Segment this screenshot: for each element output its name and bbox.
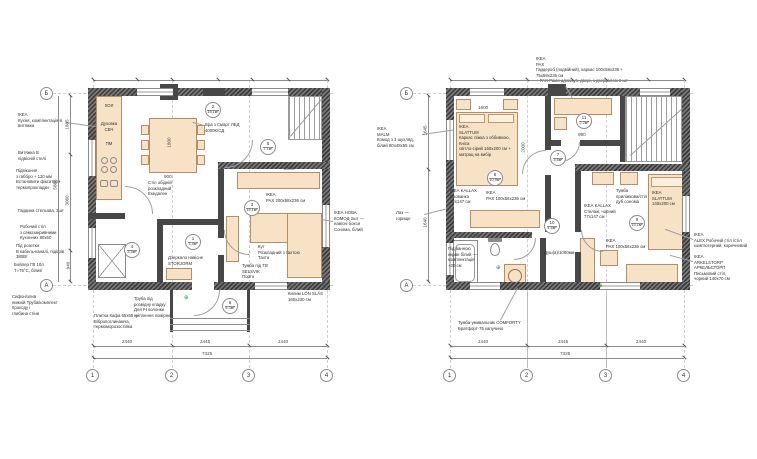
room-number: 11 bbox=[582, 116, 587, 121]
dim-tick bbox=[216, 77, 220, 81]
dim-value: 2445 bbox=[558, 339, 568, 344]
grid-label: 4 bbox=[325, 373, 328, 379]
room-area: 15,1м² bbox=[246, 208, 257, 213]
pax-wardrobe-label: ІКЕА PAX 200x58x236 см bbox=[266, 192, 320, 203]
washing-machine-drum bbox=[508, 269, 522, 283]
dining-chair bbox=[197, 140, 205, 150]
rug-label: Килим LÖN SLÄS 160x230 см bbox=[288, 291, 328, 302]
wall-left bbox=[88, 88, 96, 290]
kallax2-label: ІКЕА KALLAX Стелаж, чорний 77x147 см bbox=[584, 203, 626, 220]
dim-table-depth: 900 bbox=[164, 174, 172, 179]
grid-line-solid bbox=[606, 292, 607, 368]
wall-bedroom2-top bbox=[575, 164, 690, 171]
dim-tick bbox=[286, 77, 290, 81]
grid-bubble-1: 1 bbox=[86, 369, 99, 382]
bed-pillow bbox=[488, 114, 514, 123]
wall-hall-top bbox=[88, 213, 125, 219]
kallax1-label: ІКЕА KALLAX Схованка 42x147 см bbox=[450, 188, 484, 205]
room-area: 3,5м² bbox=[127, 250, 136, 255]
dim-line bbox=[93, 346, 327, 347]
dim-value: 2445 bbox=[200, 339, 210, 344]
grid-bubble-b: Б bbox=[40, 87, 53, 100]
room-number: 2 bbox=[212, 105, 215, 110]
nightstand bbox=[456, 99, 471, 110]
dim-tick bbox=[68, 279, 72, 283]
dim-value-vert: 940 bbox=[65, 262, 70, 270]
grid-label: Б bbox=[45, 91, 49, 97]
dim-value: 2440 bbox=[278, 339, 288, 344]
grid-bubble-2: 2 bbox=[520, 369, 533, 382]
room-number: 8 bbox=[494, 173, 497, 178]
hob-burner bbox=[110, 166, 117, 173]
toilet-tank bbox=[488, 238, 502, 242]
outlet-marker: ⊕ bbox=[496, 266, 501, 272]
dim-bed1-width: 1600 bbox=[478, 105, 488, 110]
wall-bedroom2-left bbox=[575, 171, 581, 232]
room-number: 7 bbox=[557, 153, 560, 158]
toilet-bowl bbox=[490, 243, 500, 256]
outlet-marker: ⊕ bbox=[598, 284, 603, 290]
room-area: 2,2м² bbox=[579, 121, 588, 126]
dim-value: 2440 bbox=[478, 339, 488, 344]
leader-line bbox=[500, 288, 518, 320]
hob-burner bbox=[110, 157, 117, 164]
wall-right bbox=[322, 88, 330, 290]
dim-tick bbox=[250, 77, 254, 81]
window bbox=[322, 205, 330, 247]
grid-label: 2 bbox=[525, 373, 528, 379]
vanity-label: Тумба-умивальник COMFORTY Братфорт-75 ка… bbox=[458, 320, 524, 331]
porch-step bbox=[170, 324, 250, 325]
alex-desk-label: ІКЕА ALEX Робочий стіл /стіл комп'ютерни… bbox=[694, 232, 752, 249]
dim-total: 7325 bbox=[202, 351, 212, 356]
sconce-label: Бра з Смарт ЛЕД 4000К/СД bbox=[205, 122, 247, 133]
window bbox=[600, 282, 640, 290]
porch-wall bbox=[247, 290, 250, 332]
nightstand bbox=[503, 99, 518, 110]
wall-bedroom2-left bbox=[575, 252, 581, 282]
note-kitchen: ІКЕА Кухня, комплектація й витяжка bbox=[18, 112, 68, 129]
dining-table bbox=[149, 118, 197, 173]
grid-label: А bbox=[404, 283, 408, 289]
sink-bowl bbox=[110, 180, 118, 187]
window bbox=[252, 88, 288, 96]
dining-table-label: Стіл обідній розкладний Екедален bbox=[148, 180, 190, 197]
door-arc bbox=[522, 150, 546, 174]
dim-closet: 990 bbox=[578, 132, 586, 137]
sofa-label: Кут Розкладний з тахтою Тахта bbox=[258, 244, 302, 261]
room-tag-hall: 4 3,5м² bbox=[124, 242, 140, 258]
grid-line-solid bbox=[527, 292, 528, 368]
grid-bubble-b: Б bbox=[400, 87, 413, 100]
grid-bubble-a: А bbox=[400, 279, 413, 292]
note-commode: ІКЕА НОВА КОМОД 2шт — навісні бокси Соно… bbox=[334, 210, 368, 232]
room-tag-bedroom2: 9 13,1м² bbox=[629, 215, 645, 231]
hob-burner bbox=[101, 166, 108, 173]
oven-label: Духовка СВЧ bbox=[98, 121, 120, 132]
dining-chair bbox=[141, 155, 149, 165]
room-tag-kitchen: 2 18,1м² bbox=[205, 102, 221, 118]
dining-chair bbox=[141, 140, 149, 150]
dim-total: 7325 bbox=[560, 351, 570, 356]
attic-hatch-label: Лаз — горище bbox=[396, 210, 426, 221]
wall-room1-top bbox=[157, 219, 218, 225]
room-area: 7,1м² bbox=[263, 147, 272, 152]
door-opening bbox=[192, 282, 214, 290]
nightstand bbox=[620, 172, 638, 185]
dim-value-vert: 1885 bbox=[65, 119, 70, 129]
pax-small-label: ІКЕА PAX 100x58x236 см bbox=[486, 190, 528, 201]
dim-bath1: 1370 bbox=[470, 233, 480, 238]
note-sill: Підвіконня з габбро + 120 мм Встановити … bbox=[16, 168, 70, 190]
entry-door-arc bbox=[194, 290, 220, 316]
note-curtain: Гардина стельова, 2шт bbox=[18, 208, 66, 214]
arkelstorp-desk bbox=[626, 264, 678, 284]
dim-value: 2440 bbox=[636, 339, 646, 344]
window bbox=[88, 140, 96, 176]
grid-bubble-4: 4 bbox=[320, 369, 333, 382]
sink-bowl bbox=[100, 180, 108, 187]
dim-bed1-length: 2000 bbox=[521, 142, 526, 152]
room-area: 4,6м² bbox=[547, 226, 556, 231]
dim-tick bbox=[492, 77, 496, 81]
room-number: 9 bbox=[636, 218, 639, 223]
nightstand bbox=[592, 172, 614, 185]
dim-tick bbox=[426, 279, 430, 283]
dim-line-vert-total bbox=[58, 96, 59, 282]
grid-bubble-4: 4 bbox=[677, 369, 690, 382]
pax-wardrobe bbox=[237, 172, 320, 189]
grid-label: 2 bbox=[170, 373, 173, 379]
alex-desk bbox=[600, 250, 618, 266]
note-boiler: Бойлер ГВ 10л Т=75°С, білий bbox=[14, 262, 62, 273]
room-number: 6 bbox=[229, 301, 232, 306]
grid-label: 1 bbox=[91, 373, 94, 379]
wall-stairs-left bbox=[620, 96, 625, 162]
room-number: 3 bbox=[251, 203, 254, 208]
wall-bath-right bbox=[540, 238, 546, 282]
window bbox=[137, 88, 173, 96]
wall-closet-bottom bbox=[580, 140, 625, 146]
stair-hatch-box bbox=[98, 244, 126, 278]
tub-label: Під ванною екран білий — комплектація +3… bbox=[448, 246, 478, 268]
dim-value-vert: 1645 bbox=[423, 125, 428, 135]
pax2-label: ІКЕА PAX 100x58x236 см bbox=[606, 238, 648, 249]
grid-label: 1 bbox=[448, 373, 451, 379]
grid-bubble-3: 3 bbox=[599, 369, 612, 382]
kallax-shelf-low bbox=[470, 210, 540, 228]
door-arc bbox=[514, 238, 536, 260]
dim-value-vert: 3060 bbox=[65, 195, 70, 205]
grid-label: Б bbox=[405, 91, 409, 97]
dim-pax-width: 2000 bbox=[284, 166, 294, 171]
room-area: 10,9м² bbox=[489, 178, 500, 183]
dining-chair bbox=[197, 125, 205, 135]
nightstand-label: Тумба приліжкова/стіл дуб сонома bbox=[616, 188, 654, 205]
wall-living-left bbox=[218, 169, 224, 238]
dining-chair bbox=[197, 155, 205, 165]
hob-burner bbox=[101, 157, 108, 164]
dim-table-width: 1800 bbox=[167, 137, 172, 147]
room-tag-porch: 6 5,3м² bbox=[222, 298, 238, 314]
bed-pillow bbox=[651, 177, 685, 187]
grid-bubble-3: 3 bbox=[242, 369, 255, 382]
room-tag-closet: 11 2,2м² bbox=[576, 113, 592, 129]
window bbox=[470, 88, 504, 96]
porch-step bbox=[170, 330, 250, 331]
dim-line-top bbox=[93, 80, 327, 81]
bed-pillow bbox=[459, 114, 485, 123]
room-tag-bedroom1: 8 10,9м² bbox=[487, 170, 503, 186]
grid-bubble-1: 1 bbox=[443, 369, 456, 382]
room-tag-corridor: 5 7,1м² bbox=[260, 139, 276, 155]
porch-step bbox=[170, 318, 250, 319]
room-area: 3,6м² bbox=[553, 158, 562, 163]
note-tiles: Плитка Кафа 65x65 — Вібропоглинаюча, тер… bbox=[94, 313, 148, 330]
window bbox=[255, 282, 287, 290]
room-area: 3,4м² bbox=[188, 242, 197, 247]
shower-label: Душ(а)/1000мм bbox=[544, 250, 578, 256]
room-tag-bathroom: 10 4,6м² bbox=[544, 218, 560, 234]
bed2-label: ІКЕА SLATTUM 140x200 см bbox=[652, 190, 684, 207]
grid-label: 4 bbox=[682, 373, 685, 379]
dim-total-vert: 5885 bbox=[53, 179, 58, 189]
note-sockets: Під розетки В кабель-каналі, підігрів 38… bbox=[16, 243, 68, 260]
note-worktop: Робочий стіл з самозакривними Кухонних 8… bbox=[20, 224, 68, 241]
dim-line-vert bbox=[428, 96, 429, 282]
window bbox=[446, 120, 454, 160]
wall-vent-shaft bbox=[203, 88, 225, 96]
window bbox=[88, 228, 96, 258]
floor-plan-sheet: ⊕ ХОЛ Духовка СВЧ ПМ 2 18,1м² 5 7,1м² 3 … bbox=[0, 0, 757, 459]
mirror-label: Дзеркало навісне STORJORM bbox=[168, 255, 214, 266]
malm-label: ІКЕА MALM Комод з 3 шухляд, білий 80x48x… bbox=[377, 126, 423, 148]
dim-value-vert: 1640 bbox=[423, 217, 428, 227]
grid-bubble-a: А bbox=[40, 279, 53, 292]
window bbox=[470, 282, 500, 290]
fridge-label: ХОЛ bbox=[98, 103, 120, 109]
dim-line-vert bbox=[70, 96, 71, 282]
grid-label: 3 bbox=[604, 373, 607, 379]
room-area: 18,1м² bbox=[207, 110, 218, 115]
dim-bath2: 600 bbox=[522, 233, 530, 238]
bed1-label: ІКЕА SLATTUM Каркас ліжка з оббивкою, Кн… bbox=[459, 124, 517, 157]
room-number: 4 bbox=[131, 245, 134, 250]
grid-line bbox=[527, 80, 528, 292]
arkelstorp-label: ІКЕА ARKELSTORP АРКЕЛЬСТОРП Письмовий ст… bbox=[694, 254, 754, 282]
room-area: 5,3м² bbox=[225, 306, 234, 311]
wall-vent-shaft bbox=[548, 84, 566, 96]
room-area: 13,1м² bbox=[631, 223, 642, 228]
grid-label: А bbox=[44, 283, 48, 289]
wall-room1-left bbox=[157, 219, 163, 282]
tv-stand-label: Тумба під ТВ SELSVIK Порто bbox=[242, 263, 286, 280]
grid-bubble-2: 2 bbox=[165, 369, 178, 382]
dim-tick bbox=[135, 77, 139, 81]
dishwasher-label: ПМ bbox=[98, 141, 120, 147]
room-number: 5 bbox=[267, 142, 270, 147]
dim-line-total bbox=[93, 358, 327, 359]
room-number: 1 bbox=[192, 237, 195, 242]
grid-label: 3 bbox=[247, 373, 250, 379]
outlet-marker: ⊕ bbox=[184, 296, 189, 302]
wall-living-left bbox=[218, 255, 224, 282]
dining-chair bbox=[141, 125, 149, 135]
note-siphon: Сифон/злив нижній Труба/комплект проходу… bbox=[12, 294, 62, 316]
room-tag-living: 3 15,1м² bbox=[244, 200, 260, 216]
window bbox=[640, 88, 670, 96]
room-tag-wc: 1 3,4м² bbox=[185, 234, 201, 250]
dresser bbox=[166, 268, 192, 280]
dim-line bbox=[450, 346, 684, 347]
room-number: 10 bbox=[549, 221, 554, 226]
closet-box bbox=[554, 117, 567, 130]
dim-value: 2440 bbox=[122, 339, 132, 344]
dim-line-total bbox=[450, 358, 684, 359]
room-tag-hall2: 7 3,6м² bbox=[550, 150, 566, 166]
